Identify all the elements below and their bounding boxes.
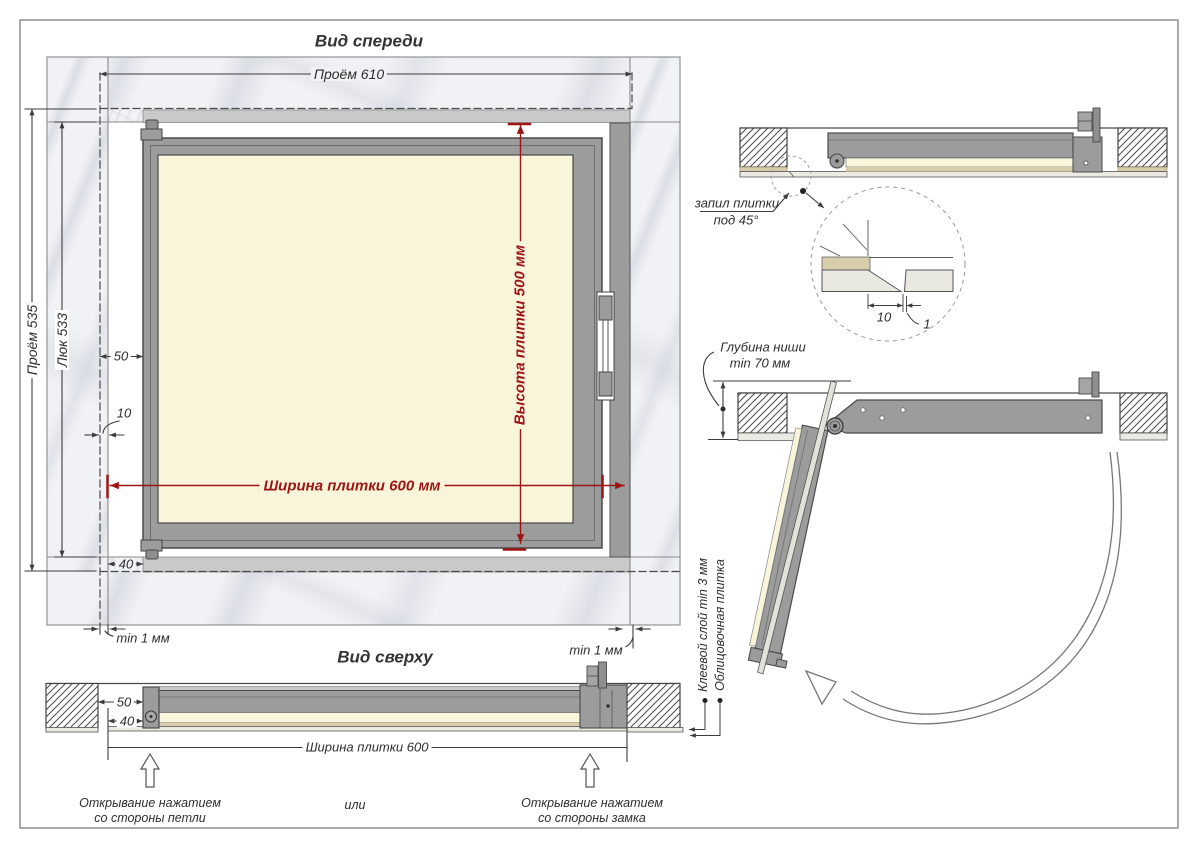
hinge-top-icon: [141, 120, 162, 140]
open-frame-arm: [826, 400, 1102, 433]
open-hinge-label-1: Открывание нажатием: [79, 797, 221, 810]
detail-dim-1: 1: [923, 318, 930, 331]
detail-45-cut: [820, 220, 953, 324]
gap-min-left: min 1 мм: [113, 632, 172, 645]
hinge-bottom-icon: [141, 540, 162, 559]
top-dim-50: 50: [114, 696, 134, 709]
push-arrow-right: [581, 754, 599, 787]
tile-cut-label: запил плитки: [695, 197, 779, 210]
wall-block-left: [740, 128, 787, 167]
niche-depth-label: Глубина ниши: [720, 341, 805, 354]
top-view-title: Вид сверху: [337, 649, 433, 666]
glue-layer-label: Клеевой слой min 3 мм: [697, 555, 710, 695]
top-view-drawing: [46, 662, 723, 787]
dim-offset-10: 10: [114, 407, 134, 420]
door-lock-handle: [597, 292, 614, 400]
open-view-drawing: [703, 352, 1167, 724]
lock-latch-icon: [1073, 108, 1102, 172]
swing-arrow: [806, 452, 1121, 724]
dim-opening-height: Проём 535: [25, 302, 39, 378]
gap-min-right: min 1 мм: [566, 644, 625, 657]
top-dim-tile-width: Ширина плитки 600: [303, 741, 432, 754]
top-view-door-frame: [159, 691, 580, 713]
dim-tile-width-red: Ширина плитки 600 мм: [259, 479, 444, 494]
section-view-drawing: [700, 108, 1167, 341]
detail-dim-10: 10: [877, 311, 891, 324]
open-hinge-label-2: со стороны петли: [94, 812, 205, 825]
dim-offset-40: 40: [116, 558, 136, 571]
open-lock-label-2: со стороны замка: [538, 812, 646, 825]
or-label: или: [345, 799, 366, 812]
open-lock-label-1: Открывание нажатием: [521, 797, 663, 810]
closed-door-frame: [828, 133, 1073, 158]
niche-depth-value: min 70 мм: [730, 357, 790, 370]
top-view-tile-strip: [108, 727, 627, 732]
push-arrow-left: [141, 754, 159, 787]
top-view-lock-icon: [580, 662, 627, 728]
tile-hatch-technical-drawing: { "front_view": { "title": "Вид спереди"…: [0, 0, 1200, 849]
dim-tile-height-red: Высота плитки 500 мм: [513, 241, 528, 429]
drawing-linework: [0, 0, 1200, 849]
dim-opening-width: Проём 610: [311, 67, 387, 81]
dim-hatch-height: Люк 533: [55, 310, 69, 370]
facing-tile-label: Облицовочная плитка: [714, 556, 727, 694]
wall-block-right: [1118, 128, 1167, 167]
top-dim-40: 40: [117, 715, 137, 728]
dim-offset-50: 50: [111, 350, 131, 363]
tile-cut-angle: под 45°: [714, 214, 759, 227]
front-view-title: Вид спереди: [315, 33, 423, 50]
